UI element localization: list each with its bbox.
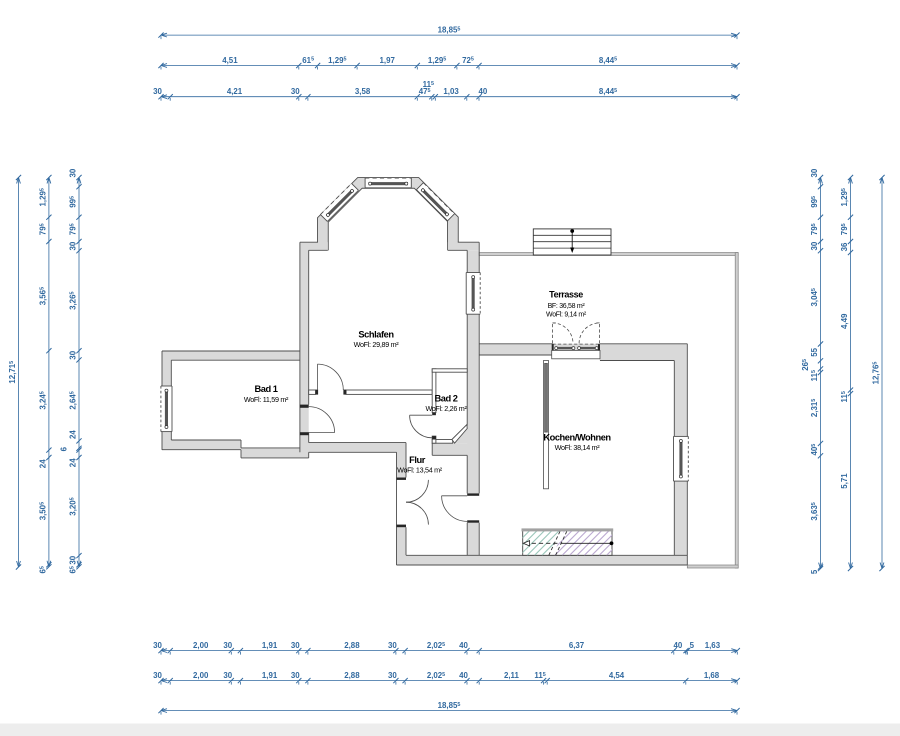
svg-text:30: 30	[153, 671, 162, 680]
svg-text:30: 30	[69, 168, 78, 177]
svg-text:40: 40	[459, 671, 468, 680]
svg-text:30: 30	[153, 641, 162, 650]
svg-text:2,11: 2,11	[504, 671, 520, 680]
svg-text:Flur: Flur	[409, 455, 426, 465]
svg-text:30: 30	[223, 671, 232, 680]
svg-text:6,37: 6,37	[569, 641, 585, 650]
svg-text:Schlafen: Schlafen	[358, 330, 394, 340]
svg-text:2,00: 2,00	[193, 641, 209, 650]
svg-text:24: 24	[69, 430, 78, 439]
svg-text:1,03: 1,03	[443, 87, 459, 96]
svg-text:WoFl: 9,14 m²: WoFl: 9,14 m²	[546, 311, 587, 318]
svg-text:3,505: 3,505	[39, 502, 48, 520]
svg-text:WoFl: 11,59 m²: WoFl: 11,59 m²	[244, 395, 289, 404]
svg-text:3,58: 3,58	[355, 87, 371, 96]
svg-text:30: 30	[810, 241, 819, 250]
svg-text:6: 6	[60, 446, 69, 451]
svg-text:40: 40	[459, 641, 468, 650]
svg-text:1,91: 1,91	[262, 671, 278, 680]
svg-text:40: 40	[479, 87, 488, 96]
svg-text:40: 40	[674, 641, 683, 650]
svg-text:WoFl: 13,54 m²: WoFl: 13,54 m²	[397, 466, 443, 475]
svg-text:Kochen/Wohnen: Kochen/Wohnen	[543, 432, 611, 442]
svg-text:18,855: 18,855	[438, 26, 461, 35]
svg-text:30: 30	[388, 641, 397, 650]
svg-text:5: 5	[810, 569, 819, 574]
svg-text:30: 30	[810, 168, 819, 177]
svg-text:4,21: 4,21	[227, 87, 243, 96]
svg-text:4,51: 4,51	[222, 56, 238, 65]
svg-text:4,54: 4,54	[609, 671, 625, 680]
svg-text:5: 5	[690, 641, 695, 650]
svg-text:WoFl: 29,89 m²: WoFl: 29,89 m²	[354, 340, 400, 349]
svg-text:30: 30	[223, 641, 232, 650]
svg-text:24: 24	[39, 459, 48, 468]
svg-text:36: 36	[840, 242, 849, 251]
svg-text:30: 30	[291, 87, 300, 96]
svg-text:Bad 2: Bad 2	[434, 394, 457, 404]
svg-text:1,63: 1,63	[705, 641, 721, 650]
svg-text:2,88: 2,88	[344, 671, 360, 680]
svg-text:24: 24	[69, 458, 78, 467]
svg-text:30: 30	[388, 671, 397, 680]
svg-text:BF: 36,58 m²: BF: 36,58 m²	[548, 303, 586, 310]
svg-text:30: 30	[291, 671, 300, 680]
svg-text:30: 30	[153, 87, 162, 96]
svg-text:12,765: 12,765	[872, 362, 881, 385]
svg-text:30: 30	[291, 641, 300, 650]
svg-text:5,71: 5,71	[840, 473, 849, 489]
svg-text:1,97: 1,97	[380, 56, 396, 65]
svg-text:1,68: 1,68	[704, 671, 720, 680]
svg-text:WoFl: 2,26 m²: WoFl: 2,26 m²	[425, 404, 467, 413]
svg-text:2,00: 2,00	[193, 671, 209, 680]
svg-text:2,88: 2,88	[344, 641, 360, 650]
svg-text:30: 30	[69, 350, 78, 359]
svg-text:30: 30	[69, 241, 78, 250]
svg-text:12,715: 12,715	[8, 361, 17, 384]
svg-text:Terrasse: Terrasse	[549, 290, 583, 300]
svg-text:30: 30	[69, 555, 78, 564]
svg-text:Bad 1: Bad 1	[254, 384, 277, 394]
svg-text:4,49: 4,49	[840, 313, 849, 329]
svg-text:55: 55	[810, 347, 819, 356]
svg-text:18,855: 18,855	[438, 701, 461, 710]
svg-text:1,91: 1,91	[262, 641, 278, 650]
svg-text:WoFl: 38,14 m²: WoFl: 38,14 m²	[555, 443, 601, 452]
